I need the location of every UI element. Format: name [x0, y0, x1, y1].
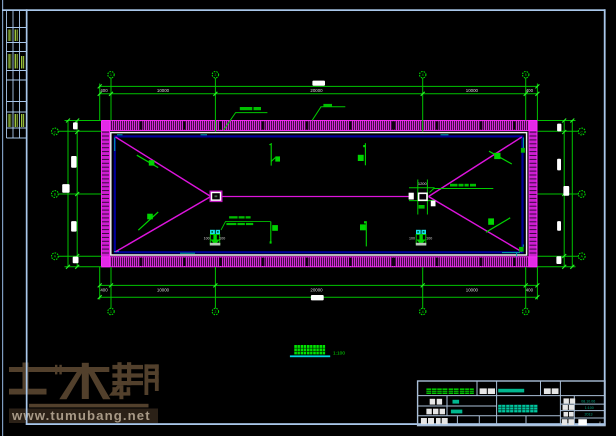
- svg-text:1: 1: [110, 310, 112, 314]
- svg-text:10000: 10000: [157, 287, 170, 292]
- svg-text:400: 400: [100, 88, 108, 93]
- svg-text:1: 1: [110, 73, 112, 77]
- svg-text:4: 4: [422, 310, 424, 314]
- svg-text:100: 100: [219, 237, 225, 241]
- svg-text:1:100: 1:100: [333, 350, 345, 356]
- svg-text:4: 4: [422, 73, 424, 77]
- svg-text:1200: 1200: [418, 181, 428, 186]
- svg-text:y: y: [599, 421, 601, 425]
- svg-text:400: 400: [100, 287, 108, 292]
- svg-text:2: 2: [214, 310, 216, 314]
- svg-text:100: 100: [426, 237, 432, 241]
- svg-text:400: 400: [526, 88, 534, 93]
- svg-text:5: 5: [525, 73, 527, 77]
- svg-text:1:100: 1:100: [585, 406, 594, 410]
- svg-text:10000: 10000: [466, 287, 479, 292]
- svg-text:08.10.06: 08.10.06: [581, 399, 595, 403]
- svg-text:100: 100: [204, 237, 210, 241]
- svg-text:400: 400: [526, 287, 534, 292]
- svg-text:20000: 20000: [310, 88, 323, 93]
- svg-text:100: 100: [409, 237, 415, 241]
- svg-text:www.tumubang.net: www.tumubang.net: [11, 408, 151, 423]
- svg-text:10000: 10000: [466, 88, 479, 93]
- svg-text:2013: 2013: [585, 412, 593, 416]
- svg-text:5: 5: [525, 310, 527, 314]
- svg-text:10000: 10000: [157, 88, 170, 93]
- svg-text:2: 2: [214, 73, 216, 77]
- svg-text:20000: 20000: [310, 287, 323, 292]
